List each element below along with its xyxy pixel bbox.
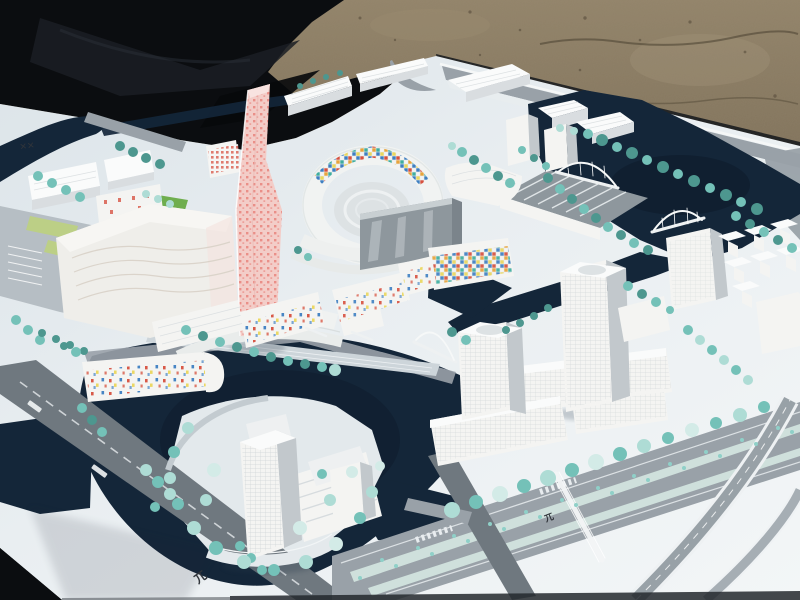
model-scene: ✕✕ 兀 兀: [0, 0, 800, 600]
photo-architectural-model: ✕✕ 兀 兀: [0, 0, 800, 600]
board-corner-marking: ✕✕: [19, 141, 35, 153]
office-tower-tall: [560, 260, 630, 412]
